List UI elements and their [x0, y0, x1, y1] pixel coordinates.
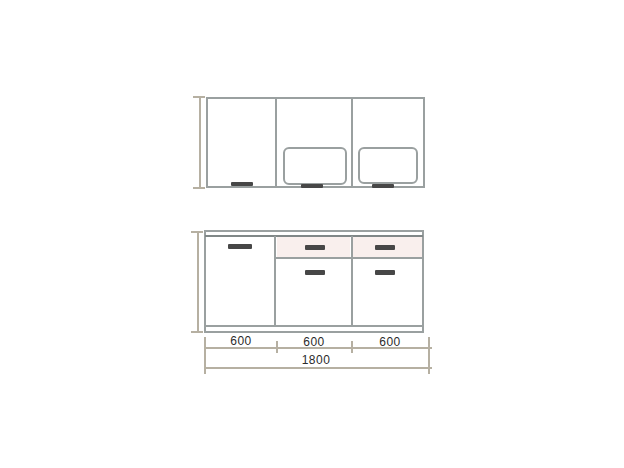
base-cabinet-divider-1 [274, 236, 276, 326]
total-dimension-line [204, 367, 432, 369]
wall-left-door-handle [231, 182, 253, 186]
upper-height-dimension-line [199, 97, 201, 188]
wall-cabinet-divider-2 [351, 97, 353, 188]
wall-right-door-handle [372, 184, 394, 188]
wall-cabinet-divider-1 [275, 97, 277, 188]
base-dimension-tick-top [191, 231, 203, 233]
base-left-door-handle [228, 244, 252, 249]
upper-dimension-tick-top [193, 96, 205, 98]
dimension-label-segment-1: 600 [230, 335, 252, 347]
base-right-drawer-handle [375, 245, 395, 250]
worktop-edge-line [205, 235, 423, 237]
wall-right-recessed-panel [358, 147, 418, 184]
plinth-line [206, 325, 422, 327]
dimension-label-segment-3: 600 [379, 336, 401, 348]
base-middle-door-handle [305, 270, 325, 275]
wall-middle-recessed-panel [283, 147, 347, 185]
elevation-drawing-canvas: 600 600 600 1800 [0, 0, 624, 468]
drawer-door-separation-line [276, 257, 422, 259]
base-right-door-handle [375, 270, 395, 275]
base-height-dimension-line [197, 232, 199, 333]
dimension-label-total: 1800 [302, 354, 331, 366]
upper-dimension-tick-bottom [193, 187, 205, 189]
base-dimension-tick-bottom [191, 331, 203, 333]
dimension-label-segment-2: 600 [303, 336, 325, 348]
wall-middle-door-handle [301, 184, 323, 188]
base-cabinet-divider-2 [351, 236, 353, 326]
base-middle-drawer-handle [305, 245, 325, 250]
